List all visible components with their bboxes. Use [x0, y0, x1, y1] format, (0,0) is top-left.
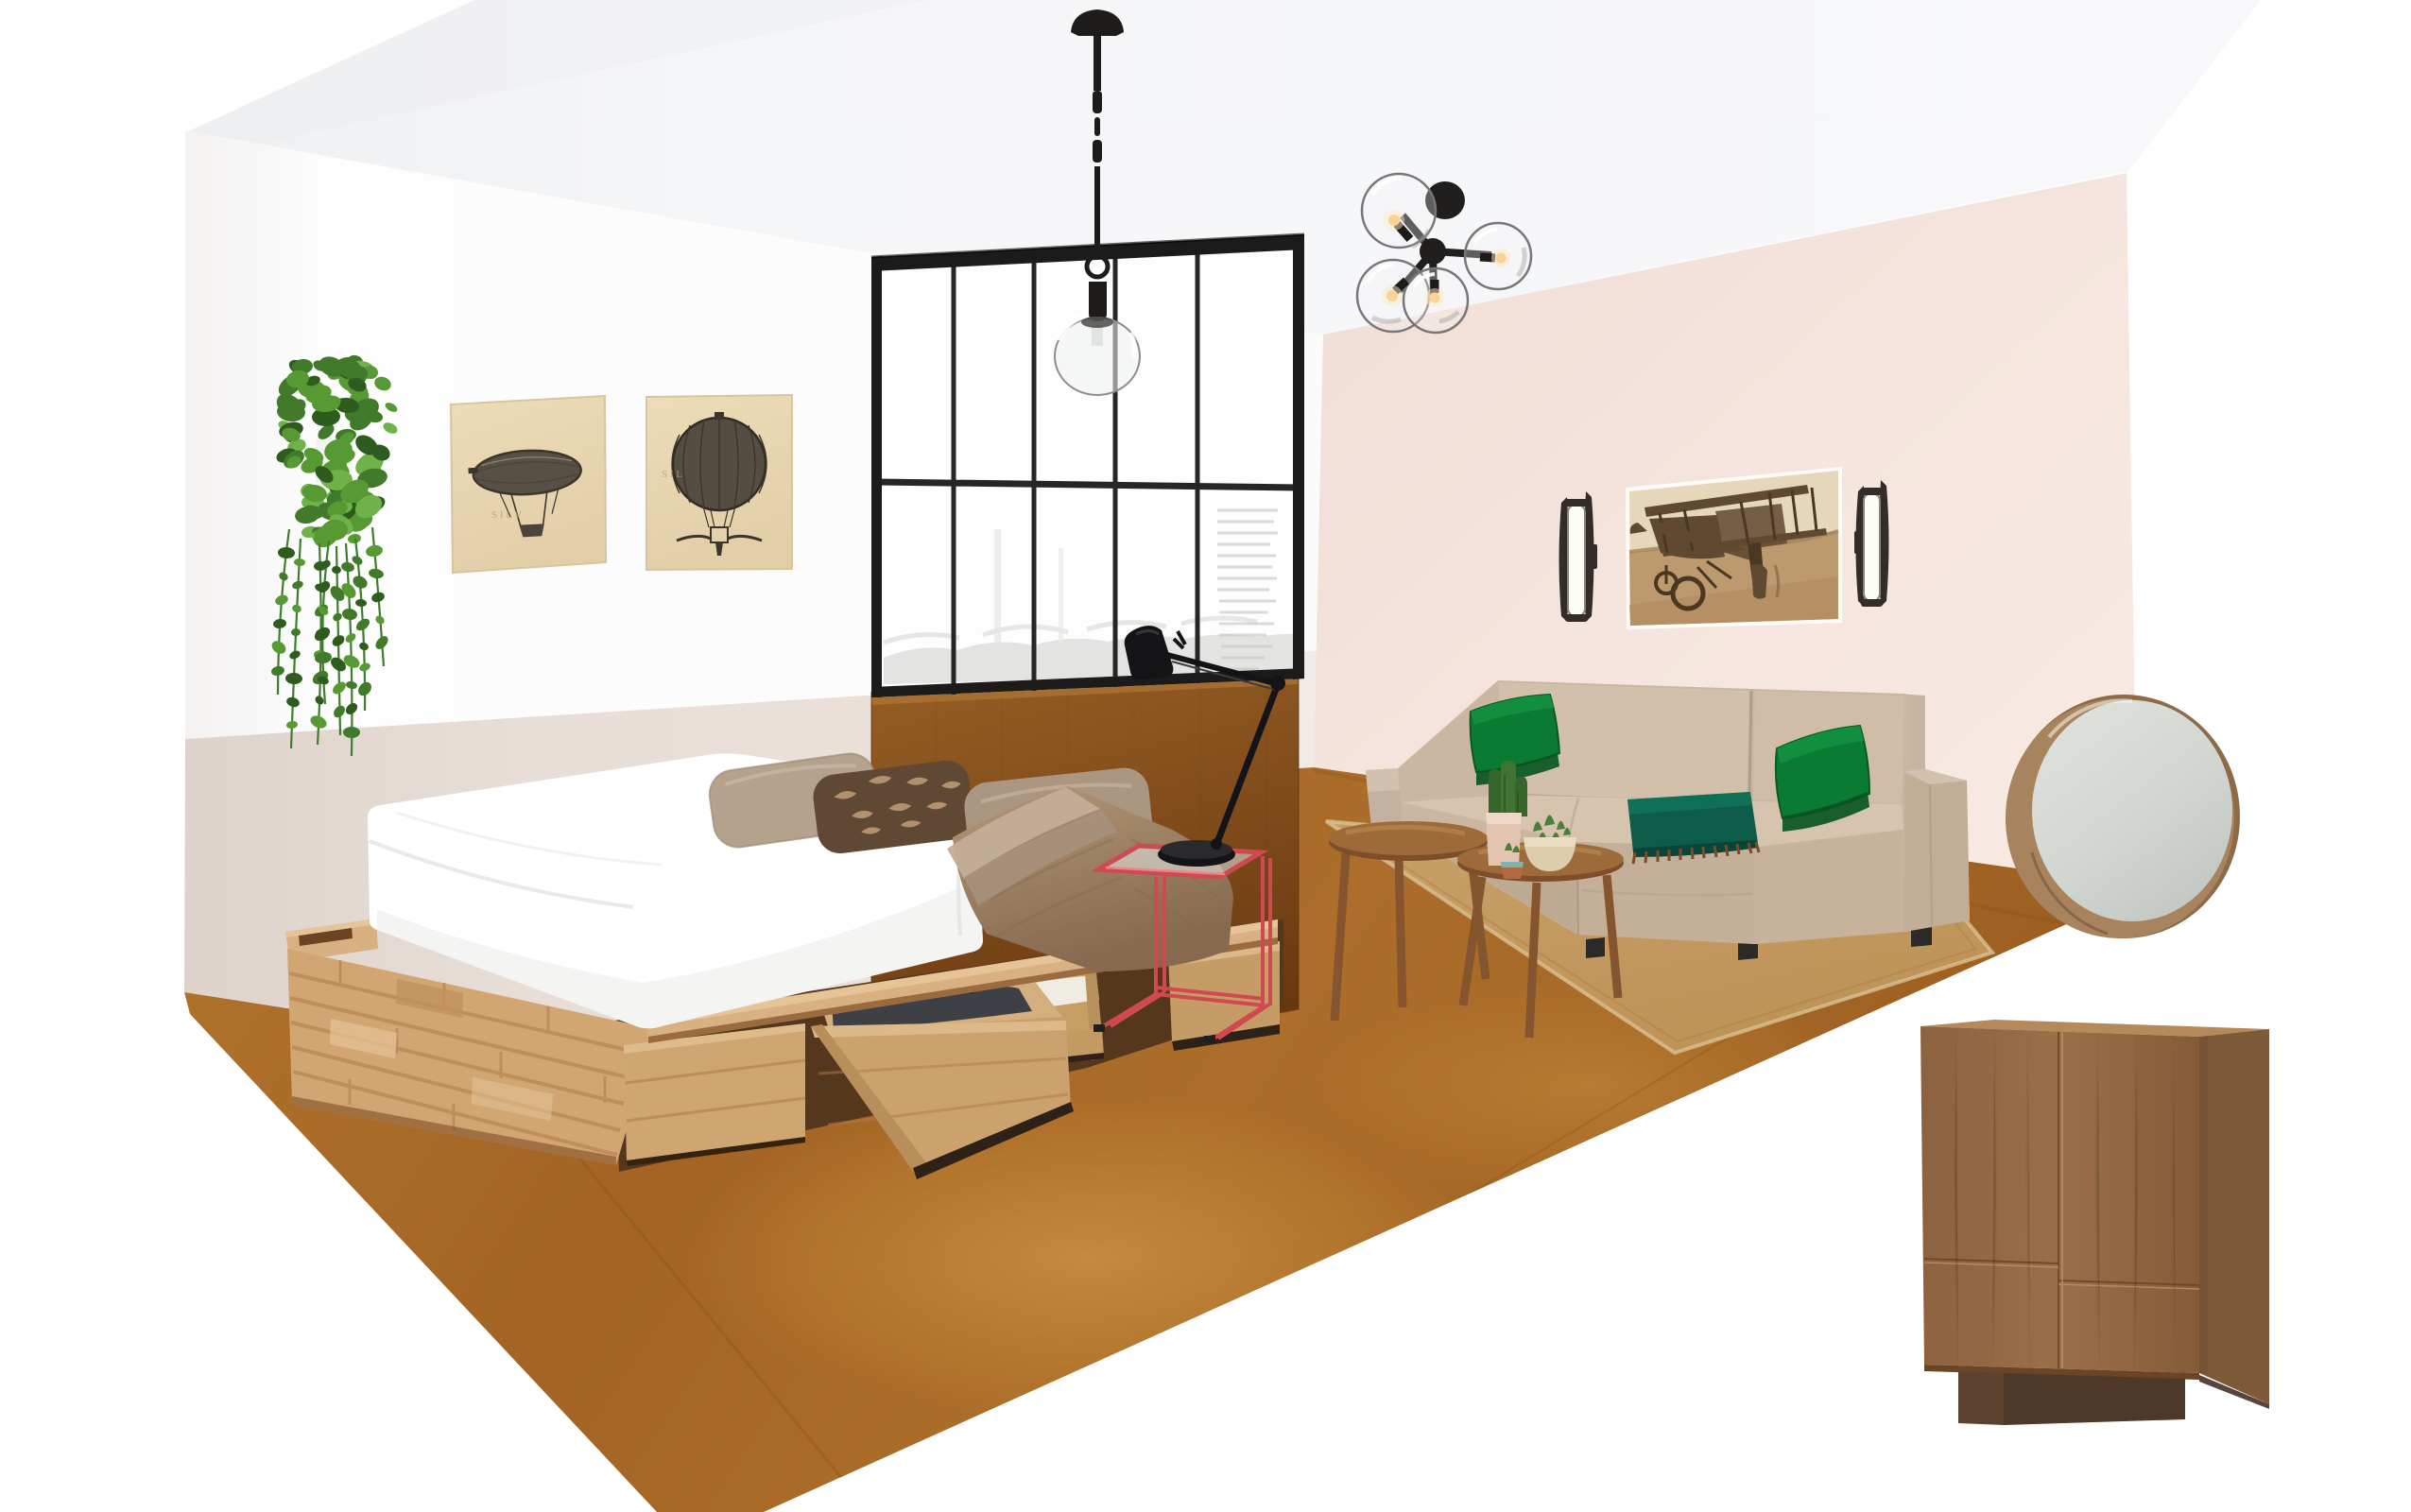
svg-text:S I L: S I L: [662, 469, 682, 480]
svg-text:S I L V: S I L V: [491, 509, 522, 521]
